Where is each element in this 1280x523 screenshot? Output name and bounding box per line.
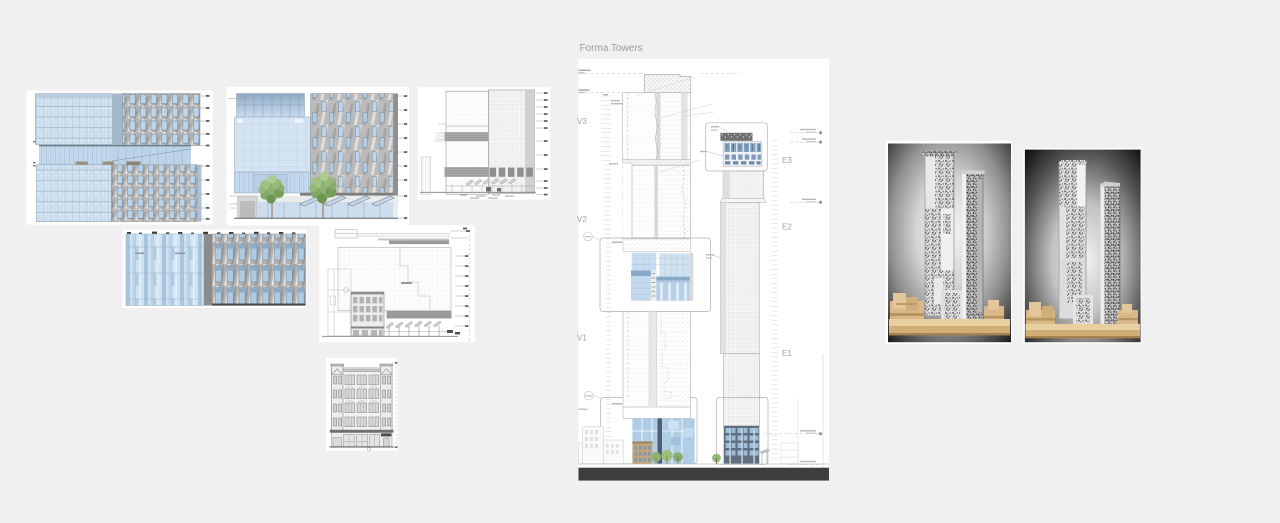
svg-text:Forma Towers: Forma Towers (580, 43, 643, 54)
svg-text:V1: V1 (577, 334, 587, 343)
svg-text:V3: V3 (577, 117, 587, 126)
svg-text:E3: E3 (782, 156, 792, 165)
svg-text:V2: V2 (577, 215, 587, 224)
svg-text:E2: E2 (782, 223, 792, 232)
svg-text:E1: E1 (782, 349, 792, 358)
